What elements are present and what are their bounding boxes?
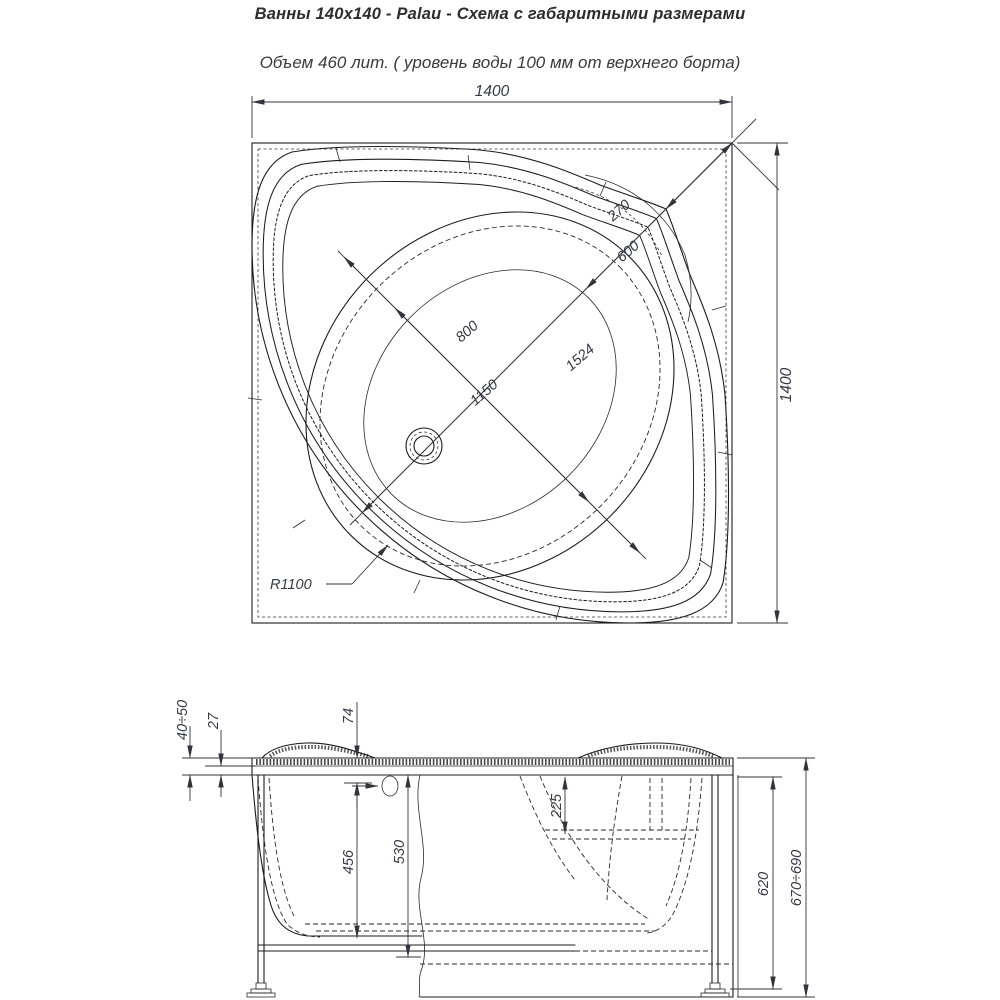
dim-headrest-height: 74 (341, 702, 357, 808)
dim-headrest-height-label: 74 (341, 708, 357, 724)
dim-basin-top-width-label: 1150 (467, 377, 501, 410)
drawing-page: Ванны 140x140 - Palau - Схема с габаритн… (0, 0, 1000, 1000)
dim-rim-overhang-label: 40÷50 (175, 700, 191, 740)
deck (252, 758, 733, 775)
adjustable-foot-right (701, 983, 729, 997)
adjustable-foot-left (247, 983, 275, 997)
dim-front-radius-label: R1100 (270, 577, 312, 593)
dim-overall-depth: 1400 (732, 143, 795, 623)
dim-inner-depth-label: 456 (341, 849, 357, 874)
dim-rim-overhang: 40÷50 (175, 700, 191, 801)
dim-frame-height-label: 620 (756, 872, 772, 896)
dim-seat-depth: 225 (549, 777, 565, 834)
dim-corner-to-basin-label: 600 (614, 238, 643, 266)
dim-rim-thickness-label: 27 (206, 712, 222, 730)
dim-depth-to-frame-label: 530 (392, 840, 408, 864)
dim-total-height: 670÷690 (737, 758, 815, 997)
dim-seat-depth-label: 225 (549, 793, 565, 819)
dim-overall-depth-label: 1400 (778, 367, 795, 402)
bathtub-schematic: 1400 1400 270 600 1524 (0, 0, 1000, 1000)
headrest-right (578, 743, 722, 758)
front-panel (420, 775, 738, 997)
headrest-left (262, 743, 375, 758)
dim-depth-to-frame: 530 (392, 775, 421, 957)
dim-rim-thickness: 27 (206, 712, 222, 797)
dim-overall-width-label: 1400 (475, 83, 510, 100)
dim-diagonal-length-label: 1524 (563, 341, 598, 374)
jet-detail (352, 776, 398, 796)
top-view: 1400 1400 270 600 1524 (230, 83, 795, 656)
drain-circle (406, 428, 442, 464)
dim-inner-depth: 456 (341, 783, 357, 938)
side-view: 40÷50 27 74 456 530 (175, 700, 815, 997)
dim-overall-width: 1400 (252, 83, 732, 138)
dim-basin-bottom-width-label: 800 (453, 318, 482, 346)
dim-total-height-label: 670÷690 (789, 850, 805, 906)
